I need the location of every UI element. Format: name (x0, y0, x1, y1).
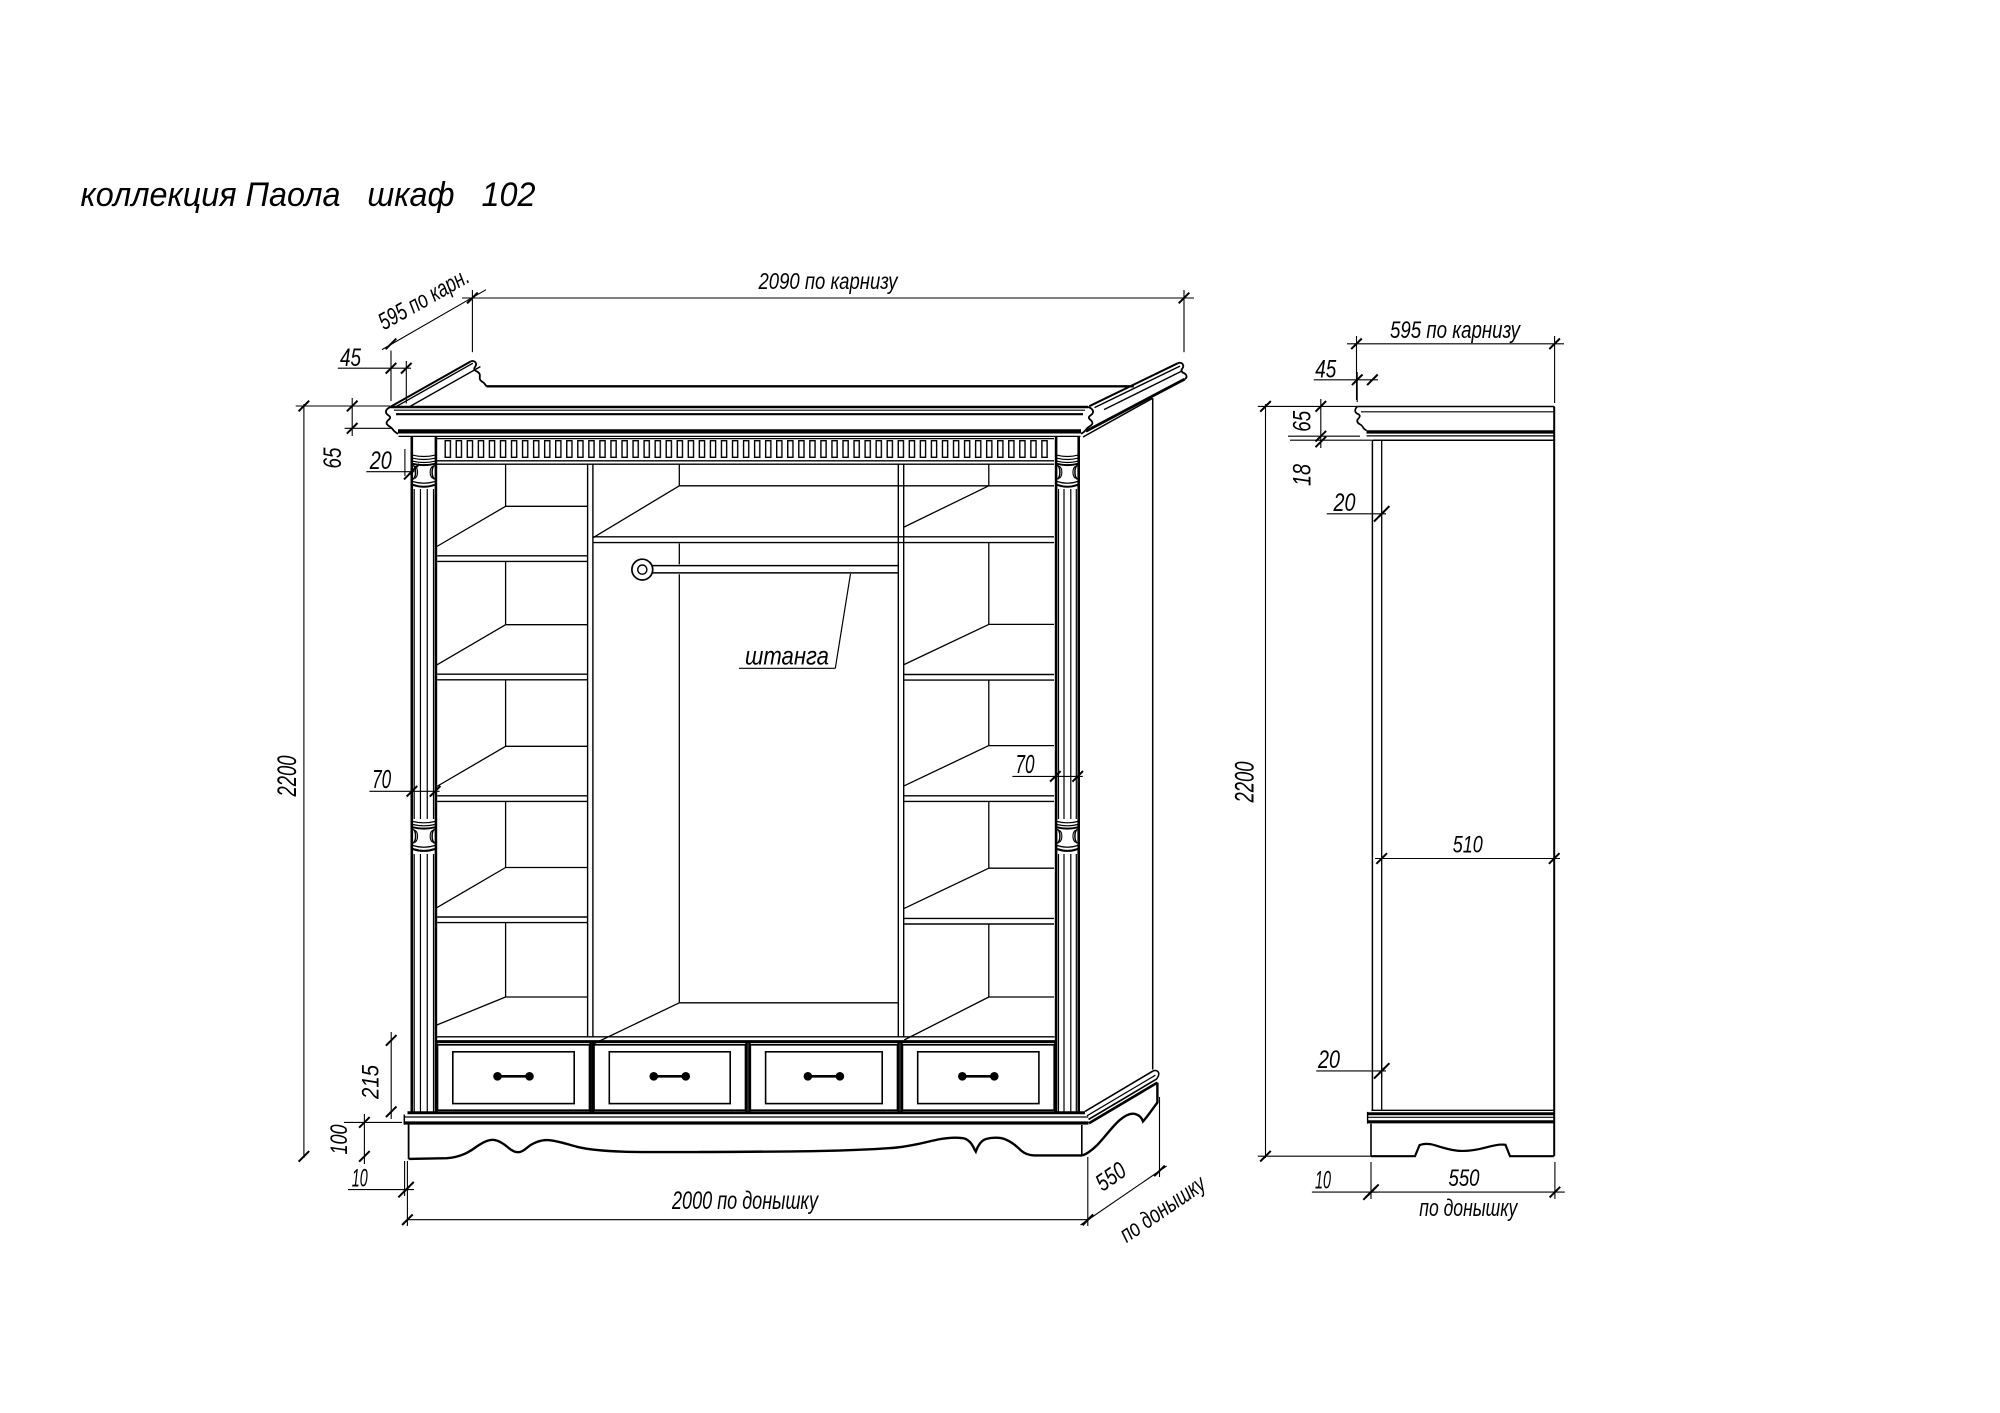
svg-text:коллекция Паола шкаф 102: коллекция Паола шкаф 102 (81, 176, 536, 214)
svg-text:штанга: штанга (745, 641, 829, 671)
svg-text:215: 215 (358, 1064, 385, 1099)
svg-text:65: 65 (319, 447, 347, 468)
svg-text:18: 18 (1289, 464, 1317, 486)
svg-text:2200: 2200 (272, 756, 302, 798)
svg-text:45: 45 (1315, 356, 1336, 384)
svg-text:2000 по донышку: 2000 по донышку (671, 1187, 819, 1215)
svg-text:70: 70 (372, 764, 391, 794)
svg-text:2200: 2200 (1230, 762, 1260, 804)
svg-text:20: 20 (1333, 489, 1356, 517)
svg-text:550: 550 (1449, 1165, 1481, 1192)
svg-text:10: 10 (352, 1165, 368, 1193)
svg-text:510: 510 (1453, 832, 1483, 859)
svg-text:595 по карнизу: 595 по карнизу (1390, 317, 1522, 344)
svg-text:65: 65 (1289, 411, 1317, 432)
svg-text:по донышку: по донышку (1419, 1195, 1518, 1222)
svg-text:10: 10 (1315, 1167, 1331, 1195)
svg-text:2090 по карнизу: 2090 по карнизу (758, 268, 899, 294)
svg-text:20: 20 (1317, 1046, 1340, 1074)
svg-text:100: 100 (326, 1124, 353, 1154)
svg-text:70: 70 (1016, 749, 1035, 779)
svg-text:20: 20 (369, 447, 392, 475)
svg-text:45: 45 (340, 344, 361, 372)
